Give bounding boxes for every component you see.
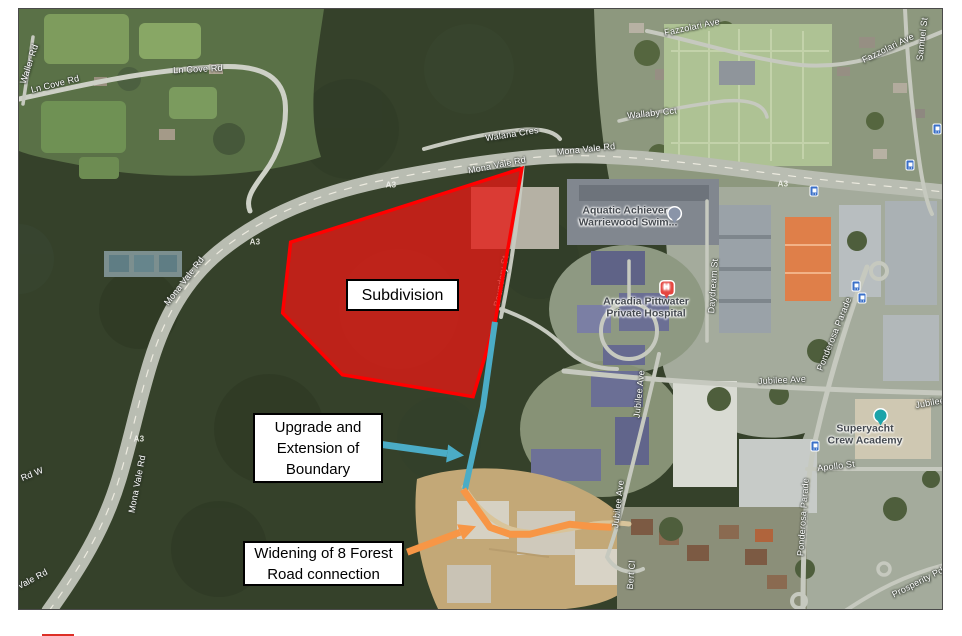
boundary-upgrade-line2: Extension of	[255, 438, 381, 459]
screenshot-stage: Waller RdLn Cove RdLn Cove RdWalana Cres…	[0, 0, 962, 636]
boundary-upgrade-line3: Boundary	[255, 459, 381, 480]
annotation-overlay	[19, 9, 942, 609]
boundary-upgrade-line1: Upgrade and	[255, 417, 381, 438]
forest-road-widening-line2: Road connection	[245, 564, 402, 585]
forest-road-widening-callout: Widening of 8 Forest Road connection	[243, 541, 404, 586]
forest-road-widening-line[interactable]	[463, 489, 612, 534]
subdivision-callout-text: Subdivision	[348, 285, 457, 306]
satellite-map[interactable]: Waller RdLn Cove RdLn Cove RdWalana Cres…	[18, 8, 943, 610]
boundary-callout-arrow	[382, 445, 464, 463]
forest-road-widening-line1: Widening of 8 Forest	[245, 543, 402, 564]
widening-callout-arrow	[407, 524, 476, 552]
subdivision-callout: Subdivision	[346, 279, 459, 311]
boundary-upgrade-callout: Upgrade and Extension of Boundary	[253, 413, 383, 483]
